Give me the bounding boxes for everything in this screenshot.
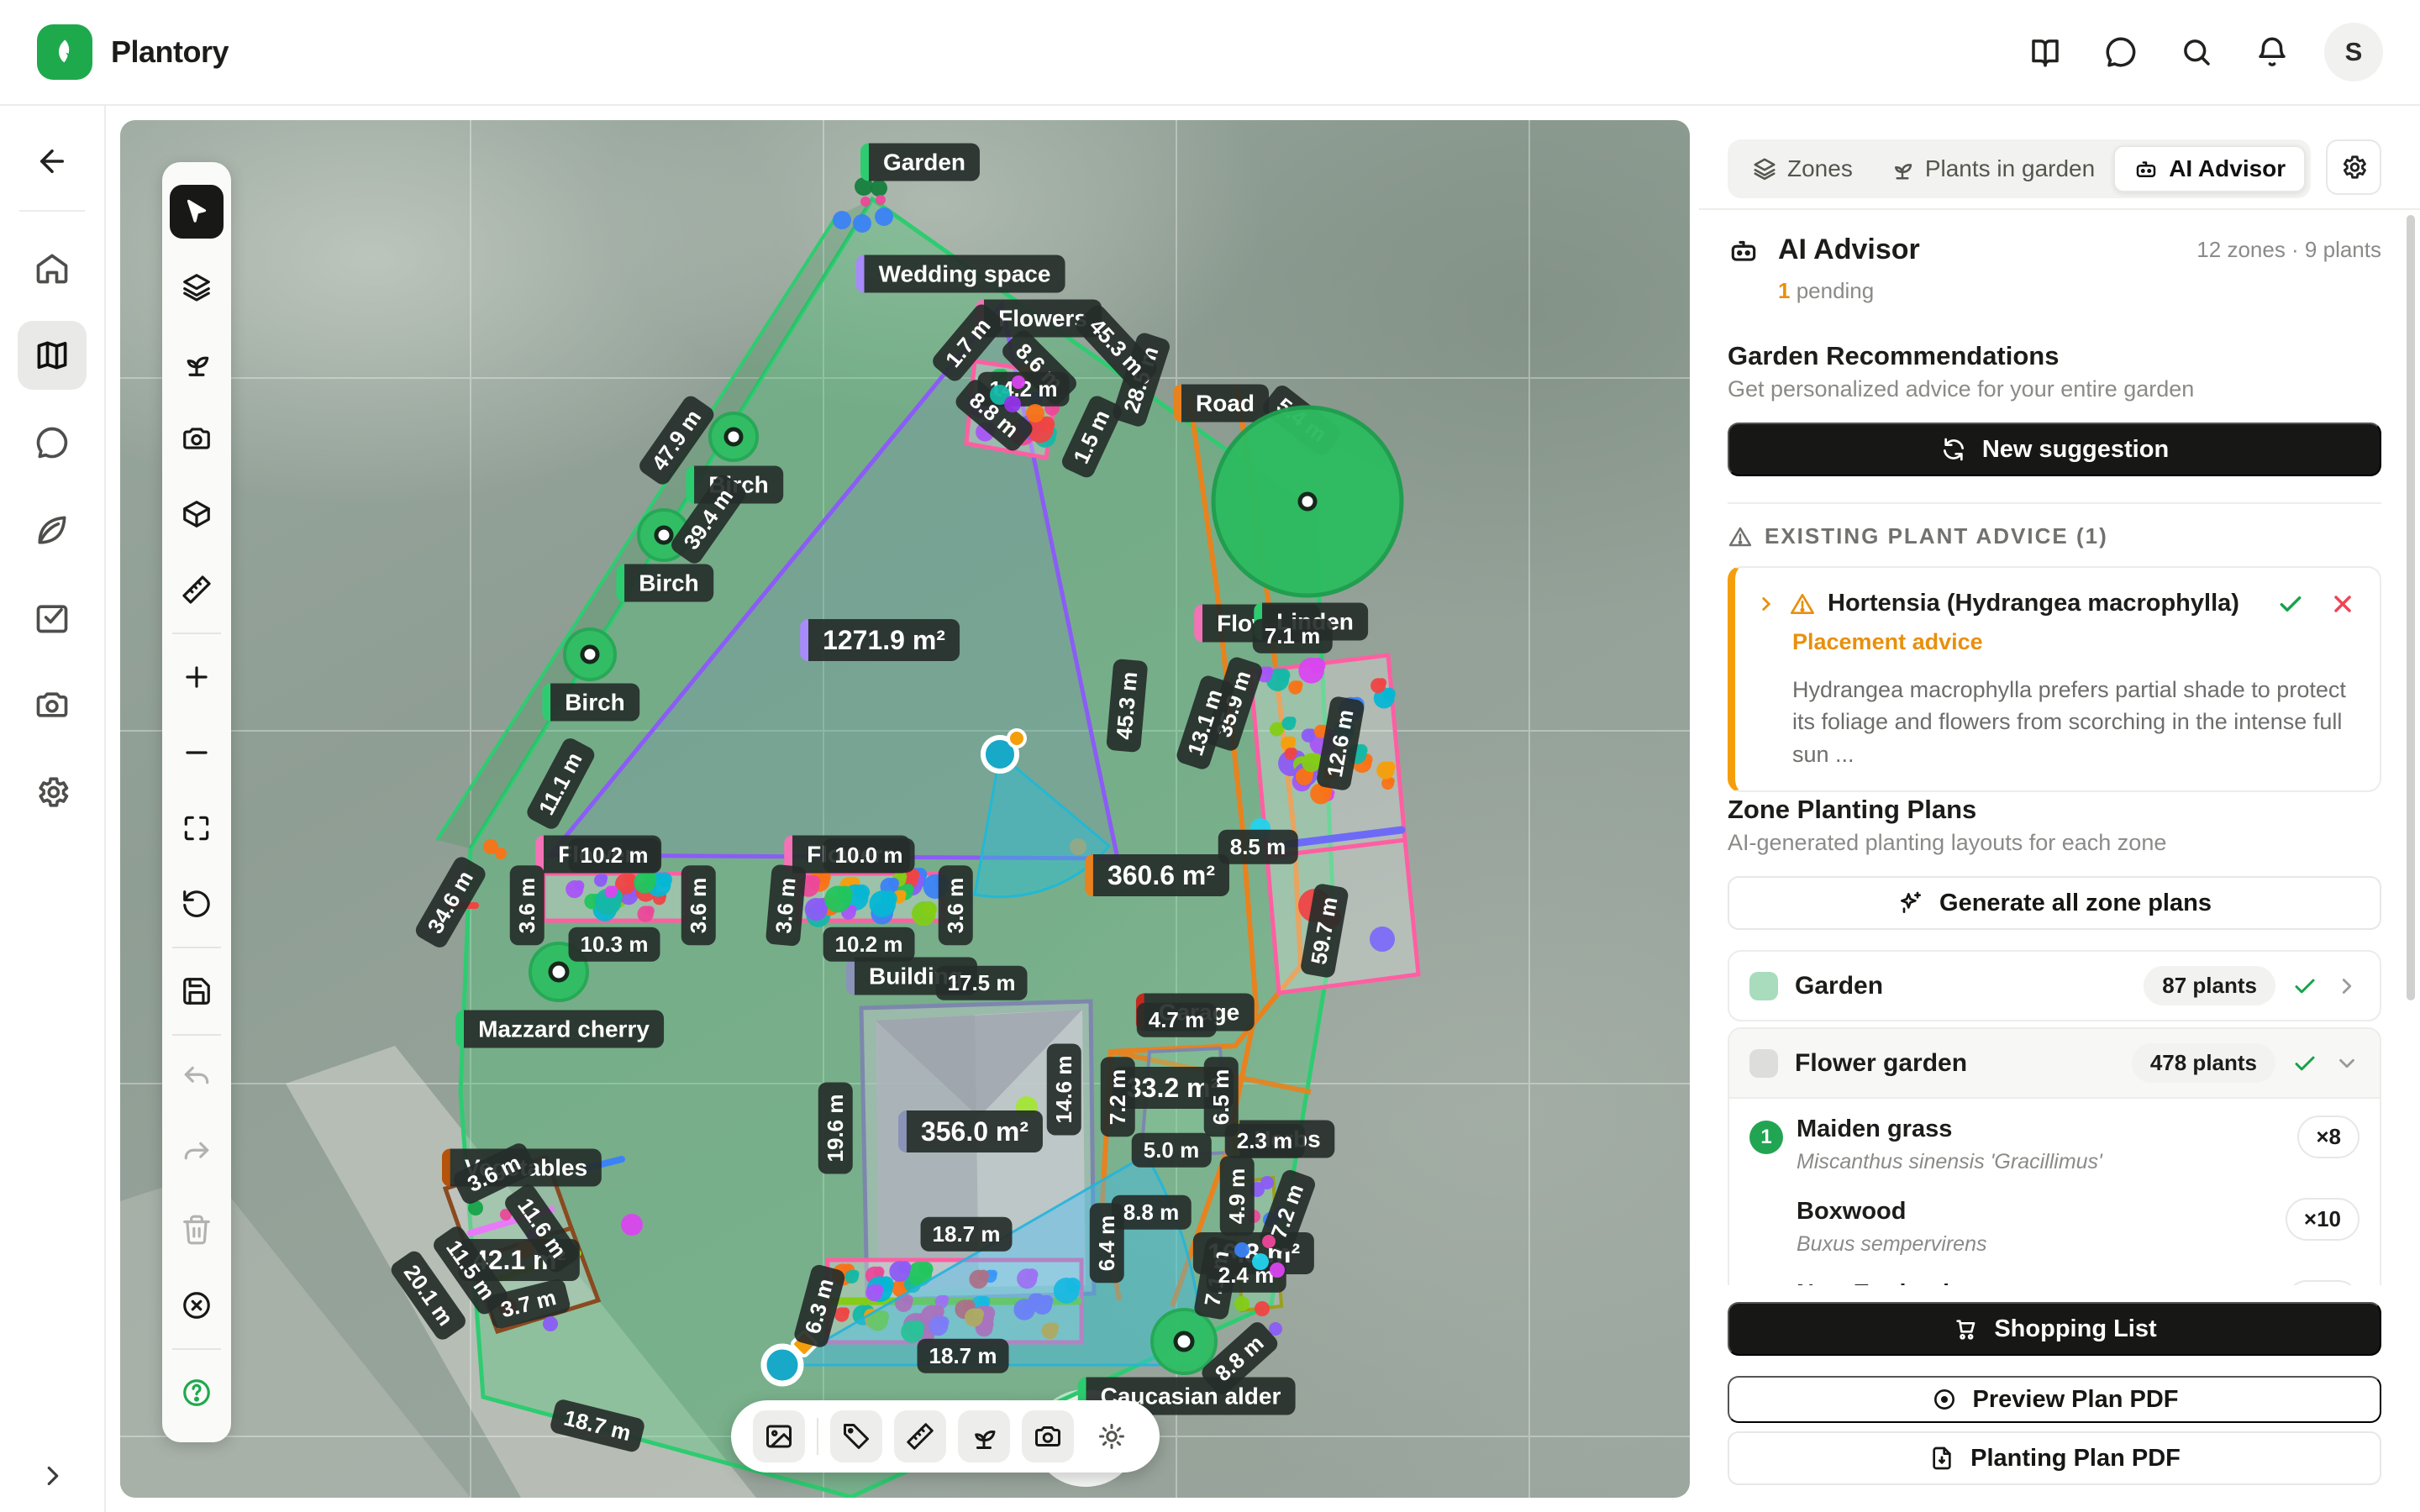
background-toggle-button[interactable] (753, 1410, 805, 1462)
labels-toggle-button[interactable] (830, 1410, 882, 1462)
trash-icon (181, 1214, 213, 1246)
measurement-label: 6.4 m (1090, 1204, 1124, 1284)
collapse-back-button[interactable] (20, 129, 84, 193)
tab-zones[interactable]: Zones (1733, 147, 1871, 191)
plant-quantity-badge: ×10 (2286, 1198, 2359, 1241)
measurement-label: 10.2 m (823, 927, 915, 962)
plant-count-badge: 478 plants (2132, 1043, 2275, 1083)
sidebar-item-photos[interactable] (18, 670, 87, 739)
zoom-out-button[interactable] (170, 726, 224, 780)
sprout-icon (1890, 156, 1915, 181)
reset-rotation-button[interactable] (170, 877, 224, 931)
plant-row[interactable]: 1Maiden grassMiscanthus sinensis 'Gracil… (1729, 1099, 2380, 1181)
panel-heading: AI Advisor (1728, 234, 1920, 266)
chat-icon (2103, 34, 2139, 70)
plus-icon (181, 661, 213, 693)
home-icon (34, 249, 71, 286)
chevron-right-icon (1755, 593, 1777, 615)
zone-label[interactable]: Road (1173, 385, 1269, 423)
area-label: 356.0 m² (898, 1110, 1043, 1152)
tree-label[interactable]: Mazzard cherry (455, 1011, 664, 1048)
app-title: Plantory (111, 34, 229, 70)
warning-icon (1789, 591, 1816, 617)
measurement-label: 18.7 m (549, 1398, 646, 1453)
measurement-label: 10.2 m (569, 838, 660, 873)
measurement-label: 3.6 m (510, 866, 544, 946)
help-icon (181, 1377, 213, 1409)
panel-footer: Shopping List Preview Plan PDF Planting … (1699, 1285, 2420, 1512)
sidebar-expand-button[interactable] (0, 1460, 106, 1492)
shopping-list-button[interactable]: Shopping List (1728, 1302, 2381, 1356)
tab-ai-advisor[interactable]: AI Advisor (2113, 145, 2306, 192)
advice-card[interactable]: Hortensia (Hydrangea macrophylla) Placem… (1728, 566, 2381, 792)
plant-quantity-badge: ×8 (2297, 1116, 2359, 1158)
measurement-label: 18.7 m (921, 1217, 1013, 1252)
delete-button[interactable] (170, 1203, 224, 1257)
area-label: 1271.9 m² (800, 619, 960, 661)
toolbar-divider (817, 1418, 818, 1455)
left-sidebar (0, 106, 106, 1512)
layers-tool-button[interactable] (170, 260, 224, 314)
pending-status: 1 pending (1778, 278, 1874, 304)
measurement-label: 8.5 m (1218, 830, 1298, 864)
sidebar-item-settings[interactable] (18, 758, 87, 827)
panel-tabs: ZonesPlants in gardenAI Advisor (1728, 139, 2311, 198)
zone-label[interactable]: Garden (860, 144, 980, 181)
measurement-label: 4.9 m (1220, 1157, 1255, 1236)
measurement-label: 11.1 m (524, 736, 597, 832)
recommendations-subtitle: Get personalized advice for your entire … (1728, 376, 2194, 402)
preview-plan-pdf-button[interactable]: Preview Plan PDF (1728, 1376, 2381, 1423)
refresh-icon (1940, 436, 1967, 463)
measurement-label: 34.6 m (413, 854, 488, 951)
save-icon (181, 975, 213, 1007)
measurement-label: 6.3 m (792, 1263, 846, 1349)
zone-plans-subtitle: AI-generated planting layouts for each z… (1728, 830, 2166, 856)
sparkles-icon (1897, 890, 1924, 916)
panel-divider (1699, 208, 2420, 210)
undo-button[interactable] (170, 1052, 224, 1105)
minus-icon (181, 737, 213, 769)
fit-view-button[interactable] (170, 801, 224, 855)
topbar-actions: S (2013, 20, 2383, 84)
zone-done-icon (2292, 974, 2317, 999)
plant-latin-name: Miscanthus sinensis 'Gracillimus' (1797, 1150, 2102, 1174)
camera-icon (1033, 1421, 1063, 1452)
redo-button[interactable] (170, 1127, 224, 1181)
save-button[interactable] (170, 964, 224, 1018)
ruler-icon (905, 1421, 935, 1452)
planting-plan-pdf-button[interactable]: Planting Plan PDF (1728, 1431, 2381, 1485)
measurement-label: 2.4 m (1207, 1258, 1286, 1293)
sprout-icon (969, 1421, 999, 1452)
new-suggestion-button[interactable]: New suggestion (1728, 423, 2381, 476)
sprout-icon (181, 347, 213, 379)
panel-scrollbar[interactable] (2407, 215, 2415, 1000)
sidebar-item-plants[interactable] (18, 496, 87, 564)
plant-number-badge: 1 (1749, 1121, 1783, 1154)
leaf-icon (34, 512, 71, 549)
bell-icon (2254, 34, 2290, 70)
help-button[interactable] (170, 1366, 224, 1420)
preview-icon (1931, 1386, 1958, 1413)
notifications-button[interactable] (2240, 20, 2304, 84)
plant-latin-name: Buxus sempervirens (1797, 1232, 1986, 1257)
object-3d-tool-button[interactable] (170, 487, 224, 541)
zoom-in-button[interactable] (170, 650, 224, 704)
zone-label[interactable]: Wedding space (856, 255, 1065, 293)
measurement-label: 7.1 m (1253, 619, 1333, 654)
measurement-label: 17.5 m (936, 966, 1028, 1000)
camera-icon (34, 686, 71, 723)
plant-name: Maiden grass (1797, 1116, 2102, 1143)
sidebar-item-tasks[interactable] (18, 583, 87, 652)
measurement-label: 5.4 m (1260, 382, 1343, 458)
search-button[interactable] (2165, 20, 2228, 84)
bot-icon (2133, 156, 2159, 181)
measurement-label: 7.2 m (1101, 1058, 1135, 1137)
section-divider (1728, 502, 2381, 504)
sidebar-item-home[interactable] (18, 234, 87, 302)
rotate-ccw-icon (181, 888, 213, 920)
zone-name: Flower garden (1795, 1049, 1967, 1078)
plant-name: Boxwood (1797, 1198, 1986, 1226)
cancel-button[interactable] (170, 1278, 224, 1332)
bot-icon (1728, 234, 1760, 266)
messages-button[interactable] (2089, 20, 2153, 84)
layers-icon (181, 271, 213, 303)
photo-tool-button[interactable] (170, 412, 224, 465)
map-toolbar (162, 162, 231, 1442)
measurement-label: 18.7 m (918, 1339, 1009, 1373)
toolbar-divider (172, 1034, 221, 1036)
advice-type: Placement advice (1792, 629, 2356, 655)
book-icon (2028, 34, 2063, 70)
user-avatar[interactable]: S (2324, 23, 2383, 81)
tree-label[interactable]: Birch (542, 684, 639, 722)
photos-toggle-button[interactable] (1022, 1410, 1074, 1462)
warning-icon (1728, 524, 1753, 549)
area-label: 360.6 m² (1085, 854, 1229, 896)
chevron-right-icon[interactable] (2334, 974, 2359, 999)
toolbar-divider (172, 947, 221, 948)
chevron-down-icon[interactable] (2334, 1051, 2359, 1076)
plant-tool-button[interactable] (170, 336, 224, 390)
map-icon (34, 337, 71, 374)
plant-row[interactable]: BoxwoodBuxus sempervirens×10 (1729, 1181, 2380, 1263)
layers-icon (1752, 156, 1777, 181)
redo-icon (181, 1138, 213, 1170)
ruler-icon (181, 574, 213, 606)
accept-advice-icon[interactable] (2277, 591, 2304, 617)
sunlight-toggle-button[interactable] (1086, 1410, 1138, 1462)
image-icon (764, 1421, 794, 1452)
sidebar-divider (19, 210, 85, 212)
sidebar-item-map[interactable] (18, 321, 87, 390)
plant-count-badge: 87 plants (2144, 966, 2275, 1005)
zone-done-icon (2292, 1051, 2317, 1076)
top-bar: Plantory S (0, 0, 2420, 106)
measurement-label: 19.6 m (818, 1083, 853, 1174)
measurement-label: 2.3 m (1225, 1124, 1305, 1158)
measurement-label: 3.6 m (939, 866, 973, 946)
map-bottom-toolbar (731, 1400, 1160, 1473)
zone-plan-card-garden[interactable]: Garden87 plants (1728, 950, 2381, 1021)
tree-label[interactable]: Birch (616, 564, 713, 602)
sun-icon (1097, 1421, 1127, 1452)
file-download-icon (1928, 1445, 1955, 1472)
measurement-label: 59.7 m (1300, 883, 1349, 979)
plants-toggle-button[interactable] (958, 1410, 1010, 1462)
right-panel: ZonesPlants in gardenAI Advisor AI Advis… (1699, 106, 2420, 1512)
x-circle-icon (181, 1289, 213, 1321)
cube-icon (181, 498, 213, 530)
plantory-logo-icon (37, 24, 92, 80)
tab-plants-in-garden[interactable]: Plants in garden (1871, 147, 2113, 191)
search-icon (2179, 34, 2214, 70)
fullscreen-icon (181, 812, 213, 844)
cart-icon (1952, 1315, 1979, 1342)
camera-icon (181, 423, 213, 454)
garden-map[interactable]: GardenWedding spaceFlowersRoadFlowersFlo… (120, 120, 1690, 1498)
tag-icon (841, 1421, 871, 1452)
advice-body: Hydrangea macrophylla prefers partial sh… (1792, 674, 2356, 770)
measurement-label: 3.6 m (681, 866, 716, 946)
advice-plant-title: Hortensia (Hydrangea macrophylla) (1828, 590, 2239, 617)
measurements-toggle-button[interactable] (894, 1410, 946, 1462)
measurement-label: 1.5 m (1060, 394, 1124, 480)
panel-settings-button[interactable] (2326, 139, 2381, 195)
brand: Plantory (37, 24, 229, 80)
generate-all-zone-plans-button[interactable]: Generate all zone plans (1728, 876, 2381, 930)
measurement-label: 14.6 m (1047, 1044, 1081, 1136)
zone-plans-title: Zone Planting Plans (1728, 795, 1976, 825)
undo-icon (181, 1063, 213, 1095)
cursor-icon (181, 196, 213, 228)
measurement-label: 10.0 m (823, 838, 915, 873)
measure-tool-button[interactable] (170, 563, 224, 617)
zones-plants-summary: 12 zones · 9 plants (2196, 237, 2381, 263)
zone-name: Garden (1795, 972, 1883, 1000)
check-square-icon (34, 599, 71, 636)
recommendations-title: Garden Recommendations (1728, 341, 2059, 371)
zone-color-swatch (1749, 972, 1778, 1000)
chat-icon (34, 424, 71, 461)
advice-section-header: EXISTING PLANT ADVICE (1) (1728, 523, 2108, 549)
toolbar-divider (172, 1348, 221, 1350)
measurement-label: 5.0 m (1132, 1133, 1212, 1168)
zone-color-swatch (1749, 1049, 1778, 1078)
toolbar-divider (172, 633, 221, 634)
measurement-label: 45.3 m (1106, 659, 1148, 753)
sidebar-item-messages[interactable] (18, 408, 87, 477)
measurement-label: 10.3 m (569, 927, 660, 962)
measurement-label: 4.7 m (1137, 1003, 1217, 1037)
gear-icon (34, 774, 71, 811)
measurement-label: 12.6 m (1316, 696, 1365, 791)
guide-book-button[interactable] (2013, 20, 2077, 84)
measurement-label: 3.6 m (765, 864, 807, 947)
dismiss-advice-icon[interactable] (2329, 591, 2356, 617)
select-tool-button[interactable] (170, 185, 224, 239)
